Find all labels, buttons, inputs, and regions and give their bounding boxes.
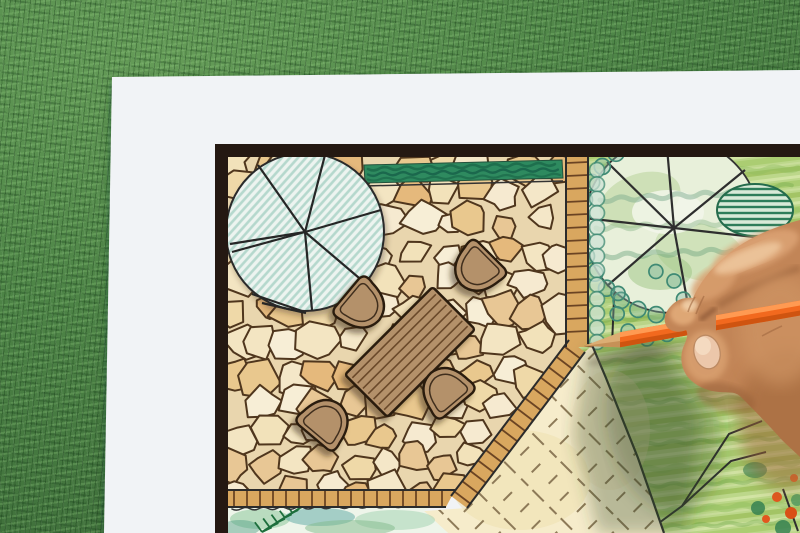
tile-strip-horizontal — [228, 490, 455, 507]
plan-frame-left — [215, 144, 228, 533]
flower-dot — [772, 492, 782, 502]
plan-frame-top — [215, 144, 800, 157]
shrub-scallop-chain — [590, 163, 605, 350]
flower-dot — [785, 507, 797, 519]
grass-background: { "scene": { "type": "photograph", "subj… — [0, 0, 800, 533]
garden-plan-photo — [0, 0, 800, 533]
flower-dot — [762, 515, 770, 523]
